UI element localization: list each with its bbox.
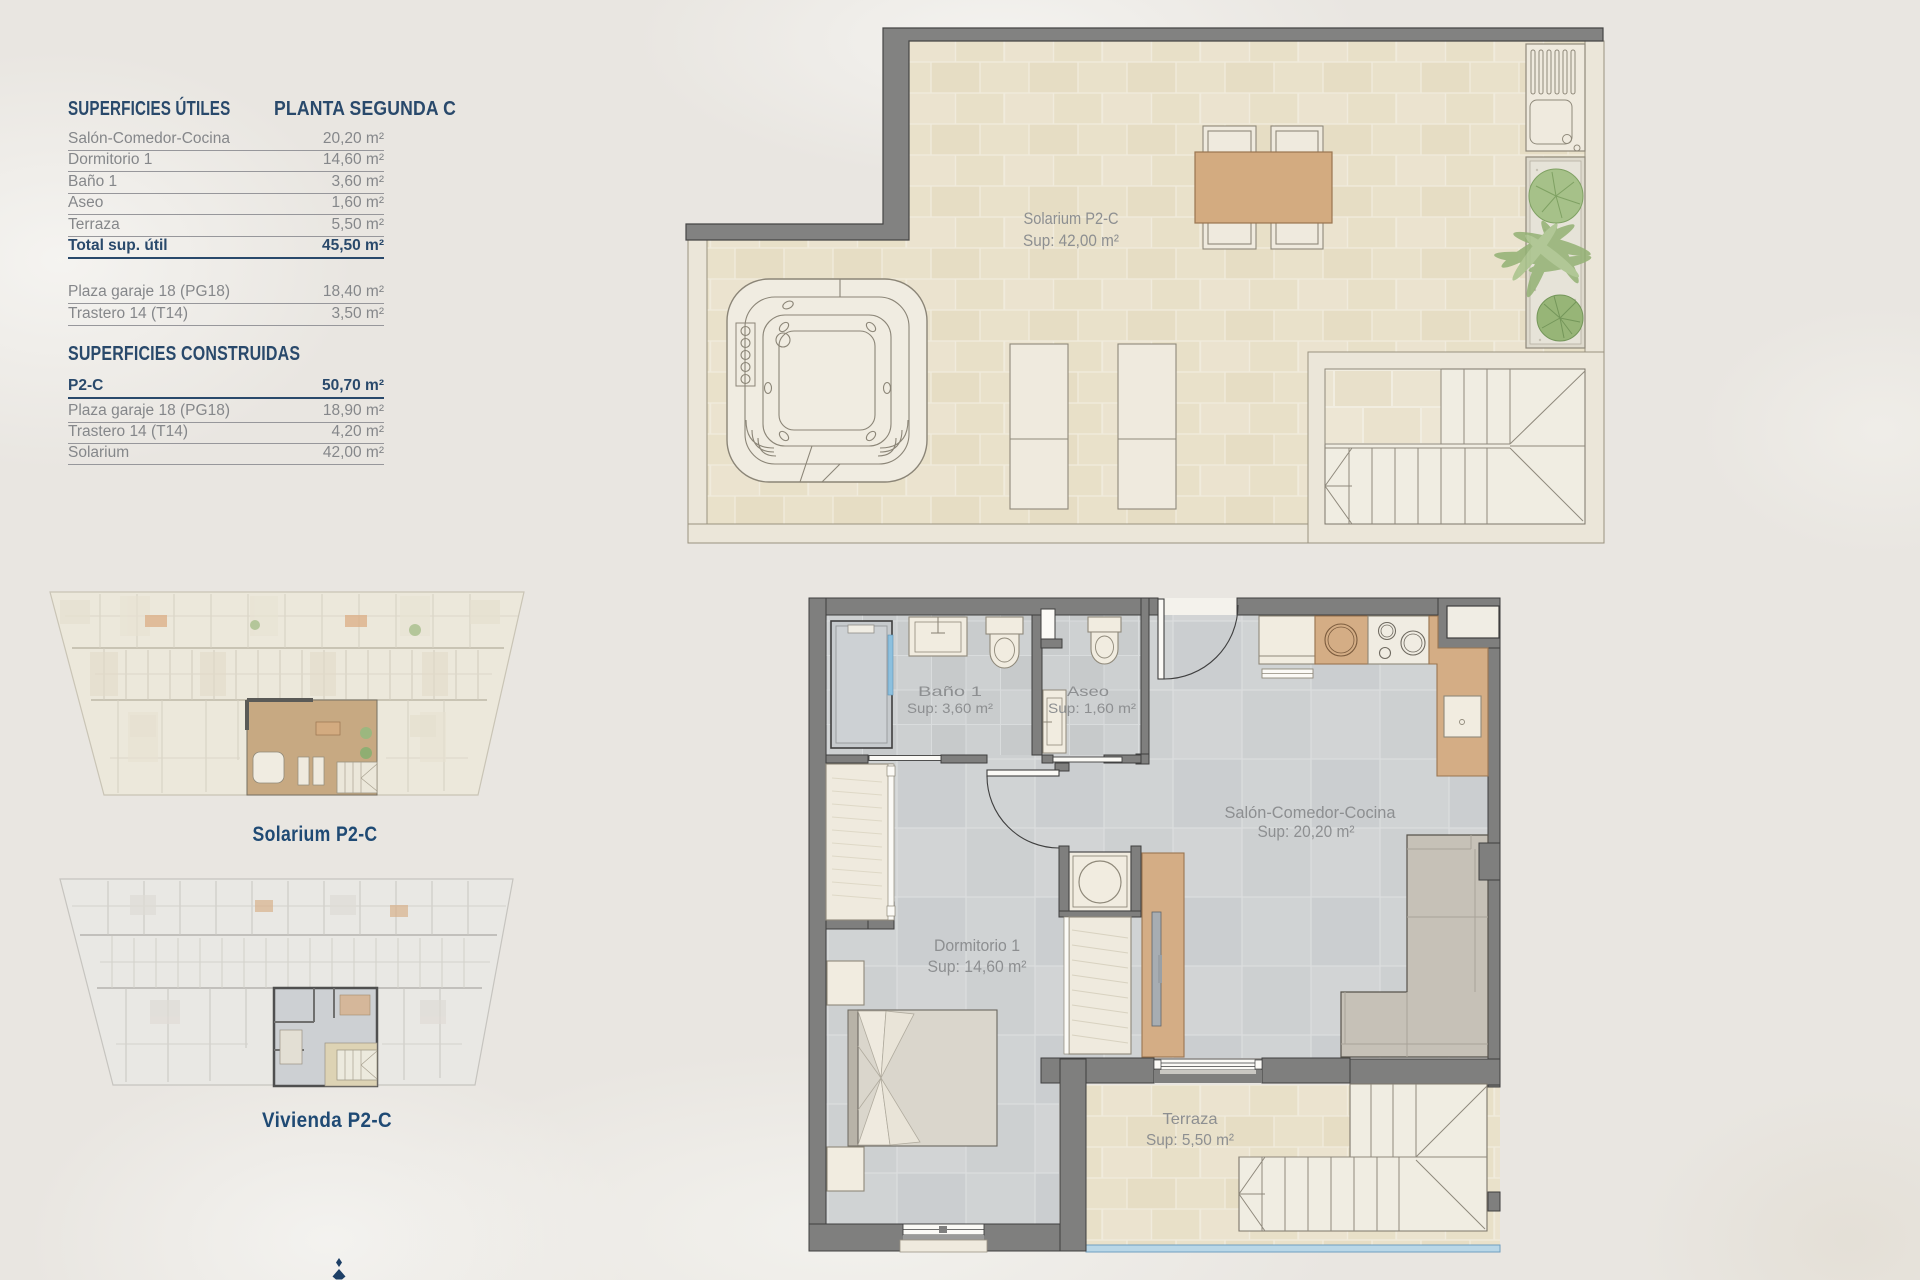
- svg-text:Solarium P2-C: Solarium P2-C: [1024, 209, 1119, 228]
- svg-text:Sup: 1,60 m²: Sup: 1,60 m²: [1048, 700, 1136, 716]
- svg-text:Sup: 20,20 m²: Sup: 20,20 m²: [1258, 822, 1355, 841]
- svg-text:Sup: 42,00 m²: Sup: 42,00 m²: [1023, 231, 1119, 250]
- svg-text:Baño 1: Baño 1: [918, 683, 982, 699]
- svg-text:Salón-Comedor-Cocina: Salón-Comedor-Cocina: [1225, 803, 1397, 822]
- svg-text:Sup: 14,60 m²: Sup: 14,60 m²: [928, 957, 1027, 976]
- svg-text:Sup: 5,50 m²: Sup: 5,50 m²: [1146, 1132, 1235, 1149]
- svg-text:Aseo: Aseo: [1067, 683, 1109, 699]
- svg-text:Terraza: Terraza: [1163, 1111, 1218, 1128]
- svg-text:Vivienda P2-C: Vivienda P2-C: [262, 1109, 392, 1132]
- svg-text:Solarium P2-C: Solarium P2-C: [253, 823, 378, 846]
- svg-text:Dormitorio 1: Dormitorio 1: [934, 936, 1020, 955]
- svg-text:Sup: 3,60 m²: Sup: 3,60 m²: [907, 700, 993, 716]
